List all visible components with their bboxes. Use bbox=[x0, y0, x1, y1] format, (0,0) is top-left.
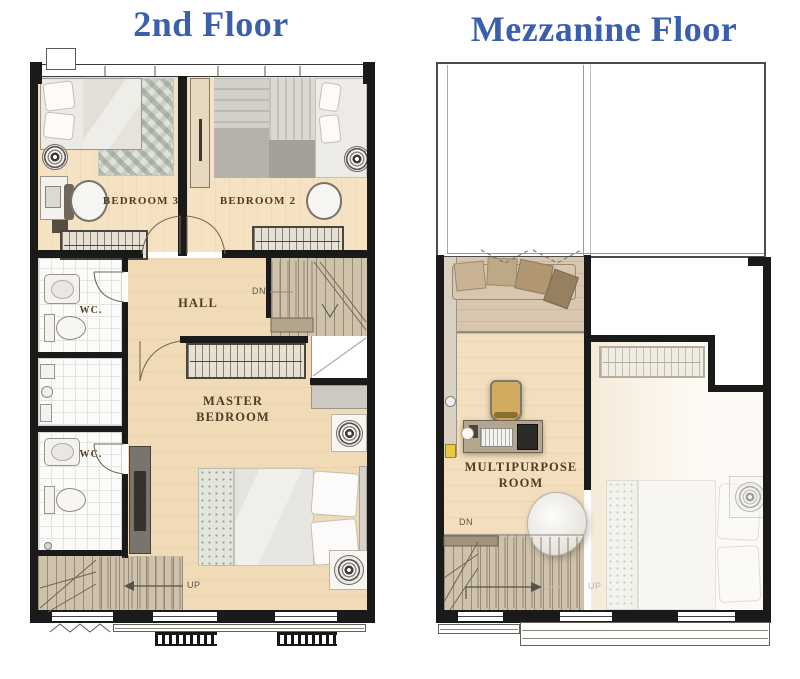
mezz-stairs-treads bbox=[444, 535, 584, 610]
folding-door-marks bbox=[481, 250, 581, 263]
multipurpose-label-line1: MULTIPURPOSE bbox=[465, 460, 578, 475]
mezzanine-plan: MULTIPURPOSE ROOM DN UP bbox=[0, 0, 800, 679]
mezz-stairs-arrow bbox=[466, 582, 560, 599]
floorplan-canvas: 2nd Floor Mezzanine Floor bbox=[0, 0, 800, 679]
mezz-stairs-down-label: DN bbox=[459, 517, 473, 527]
mezzanine-annotations-svg bbox=[436, 56, 771, 656]
mezz-stairs-up-ghost-label: UP bbox=[588, 581, 602, 591]
multipurpose-label-line2: ROOM bbox=[499, 476, 544, 491]
